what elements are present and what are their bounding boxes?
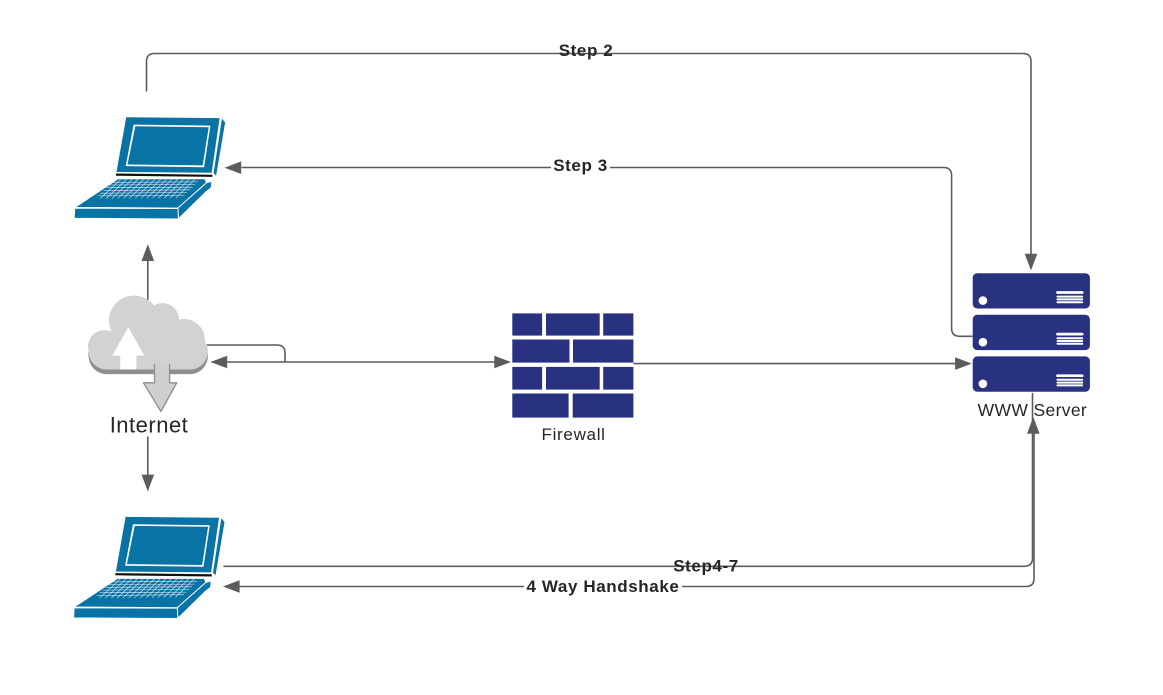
- svg-text:4 Way Handshake: 4 Way Handshake: [527, 577, 680, 596]
- svg-text:Step 2: Step 2: [559, 41, 614, 60]
- svg-text:Step4-7: Step4-7: [673, 557, 739, 576]
- svg-text:Firewall: Firewall: [542, 425, 606, 444]
- svg-text:Internet: Internet: [110, 413, 189, 438]
- svg-text:Step 3: Step 3: [553, 156, 608, 175]
- svg-text:WWW Server: WWW Server: [978, 400, 1087, 420]
